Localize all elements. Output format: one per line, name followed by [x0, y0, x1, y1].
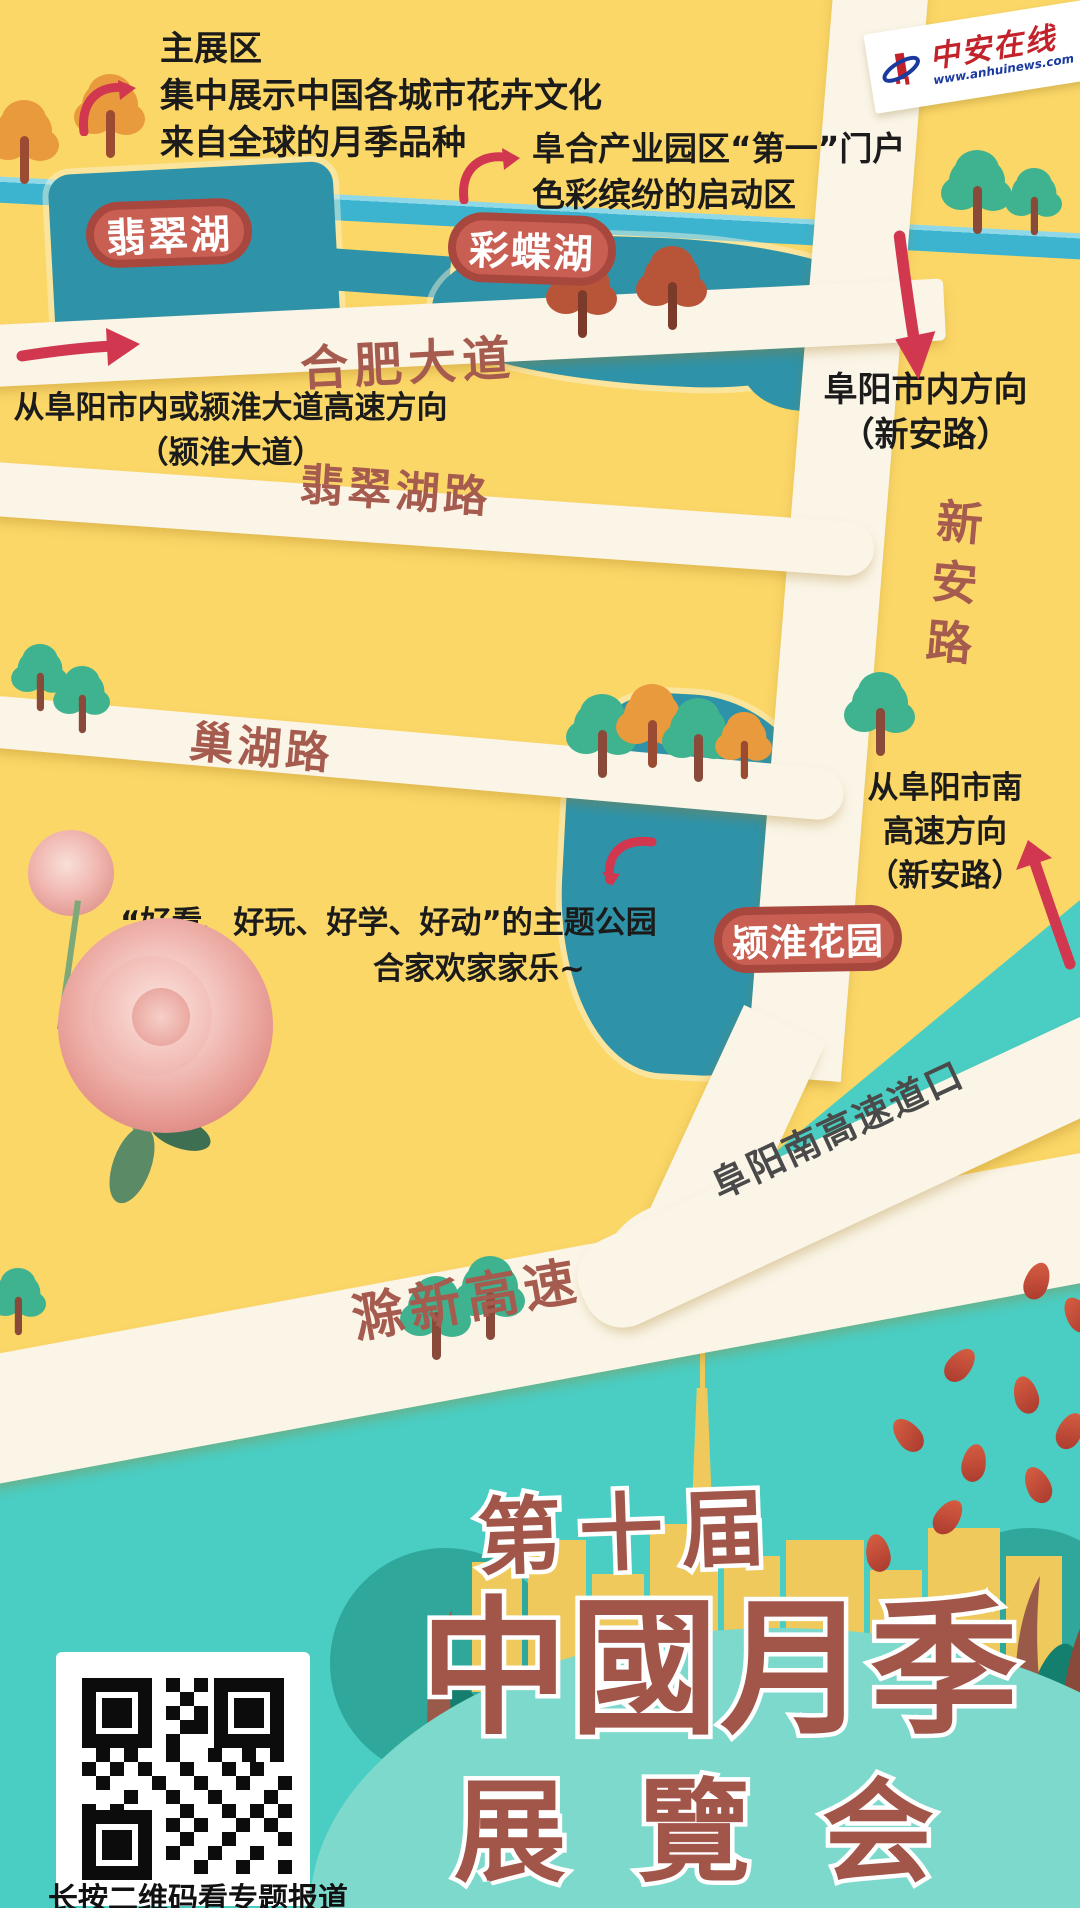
feicui-lake-badge-label: 翡翠湖: [105, 202, 233, 264]
logo-swirl-icon: [876, 44, 926, 94]
chaohu-road-label: 巢湖路: [187, 706, 336, 782]
from-city-note: 从阜阳市内或颍淮大道高速方向 （颍淮大道）: [8, 386, 453, 476]
event-map-poster: 合肥大道 翡翠湖路 巢湖路 新安路 滁新高速 阜阳南高速道口 翡翠湖 彩蝶湖 颍…: [0, 0, 1080, 1920]
qr-finder-pattern: [82, 1810, 152, 1880]
tree-icon: [718, 706, 769, 783]
tree-icon: [945, 142, 1009, 238]
down-arrow-icon: [876, 230, 940, 388]
rose-flower-illustration: [58, 918, 273, 1133]
lake-channel: [319, 248, 452, 299]
feicui-lake-badge: 翡翠湖: [85, 197, 253, 269]
right-arrow-icon: [14, 316, 146, 380]
tree-icon: [0, 92, 56, 188]
bottom-white-strip: [0, 1908, 1080, 1920]
event-title-line3: 展覽会: [430, 1742, 1030, 1904]
tree-icon: [640, 238, 704, 334]
qr-modules: [82, 1678, 96, 1692]
curved-arrow-icon: [452, 142, 520, 204]
start-zone-note: 阜合产业园区“第一”门户 色彩缤纷的启动区: [532, 126, 905, 218]
qr-finder-pattern: [214, 1678, 284, 1748]
curved-arrow-icon: [598, 834, 658, 886]
tree-icon: [848, 664, 912, 760]
yinghuai-garden-badge-label: 颍淮花园: [732, 911, 885, 968]
caidie-lake-badge-label: 彩蝶湖: [468, 218, 596, 280]
tree-icon: [1008, 162, 1059, 239]
xinan-road-label: 新安路: [910, 495, 991, 680]
up-arrow-icon: [1008, 832, 1080, 972]
tree-icon: [0, 1262, 44, 1339]
qr-code[interactable]: [56, 1652, 310, 1906]
curved-arrow-icon: [76, 78, 140, 136]
caidie-lake-badge: 彩蝶湖: [447, 211, 617, 287]
rose-bud-illustration: [28, 830, 114, 916]
event-title-line2: 中國月季: [420, 1548, 1020, 1763]
tree-icon: [56, 660, 107, 737]
yinghuai-garden-badge: 颍淮花园: [713, 904, 902, 973]
